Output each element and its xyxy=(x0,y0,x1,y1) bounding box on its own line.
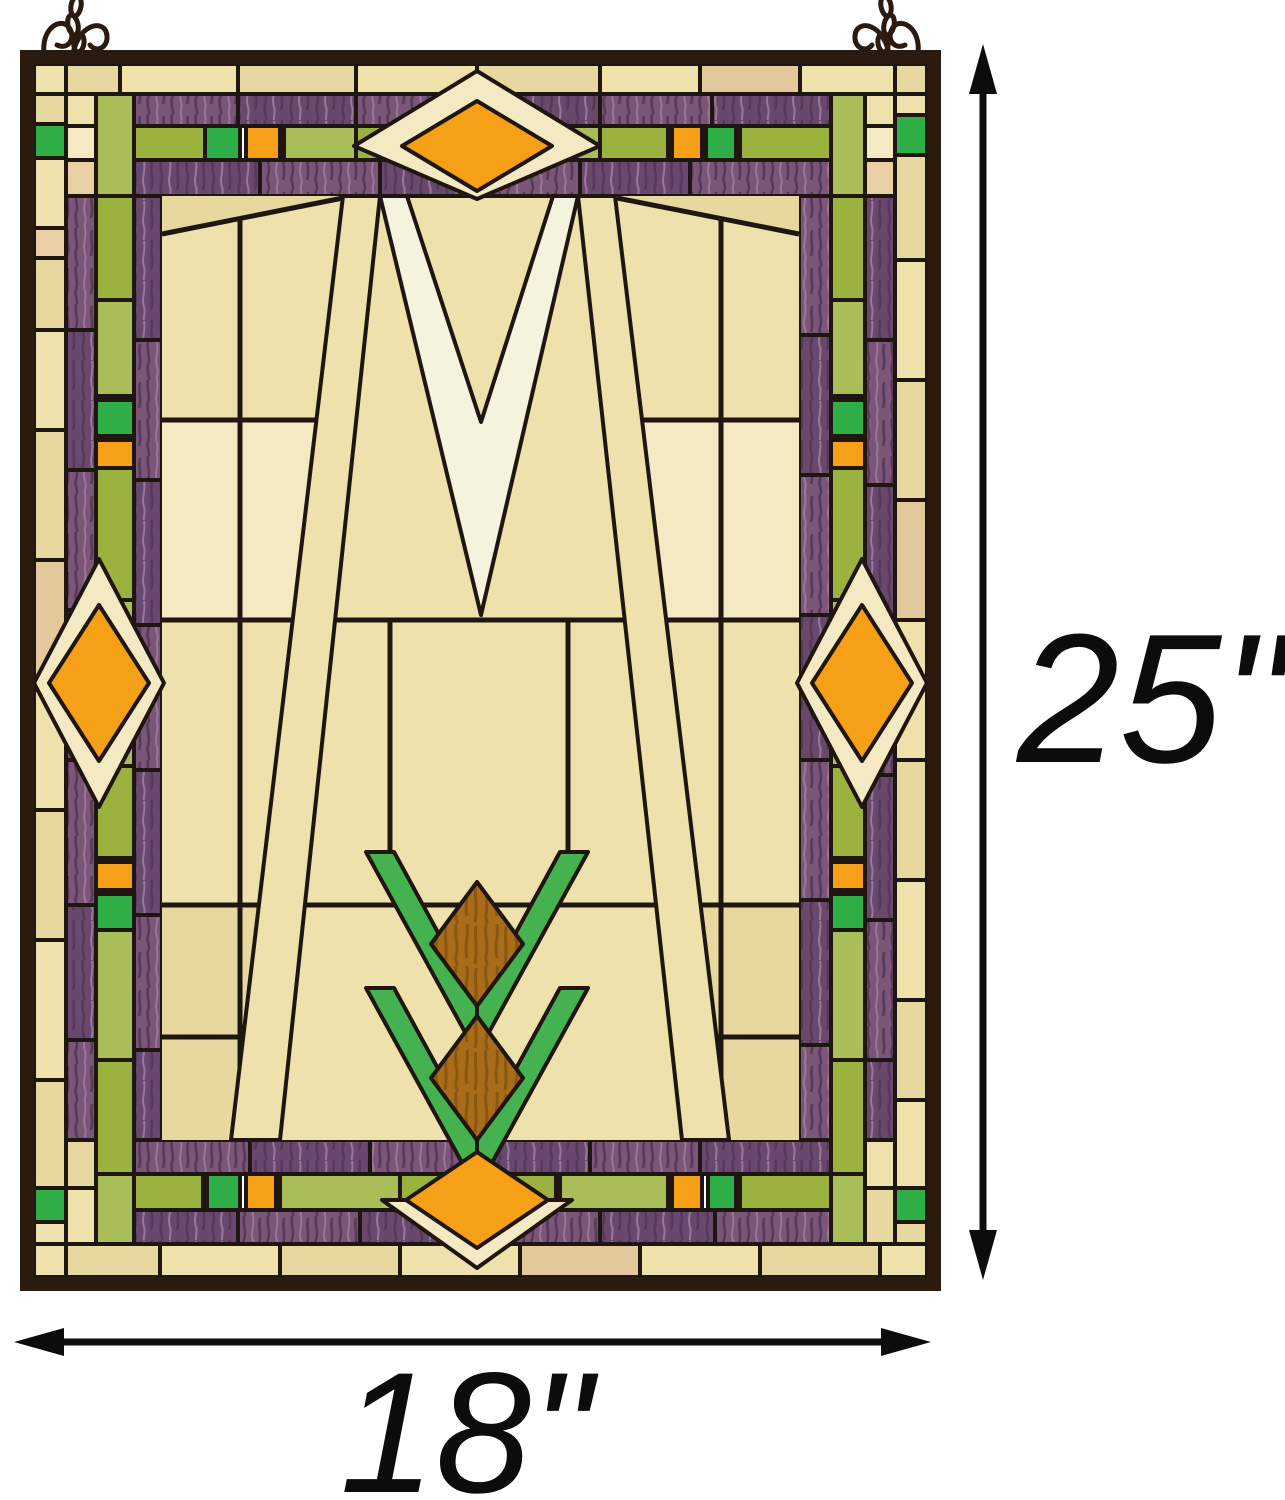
center-field xyxy=(162,196,799,1190)
height-dimension-arrow xyxy=(969,44,997,1280)
arrowhead-up-icon xyxy=(969,44,997,94)
arrowhead-right-icon xyxy=(881,1328,931,1356)
width-dimension-label: 18" xyxy=(340,1337,599,1500)
arrowhead-left-icon xyxy=(14,1328,64,1356)
height-dimension-label: 25" xyxy=(1015,595,1285,801)
product-dimension-diagram: 25" 18" xyxy=(0,0,1285,1500)
stained-glass-panel-image: 25" 18" xyxy=(0,0,1285,1500)
arrowhead-down-icon xyxy=(969,1230,997,1280)
